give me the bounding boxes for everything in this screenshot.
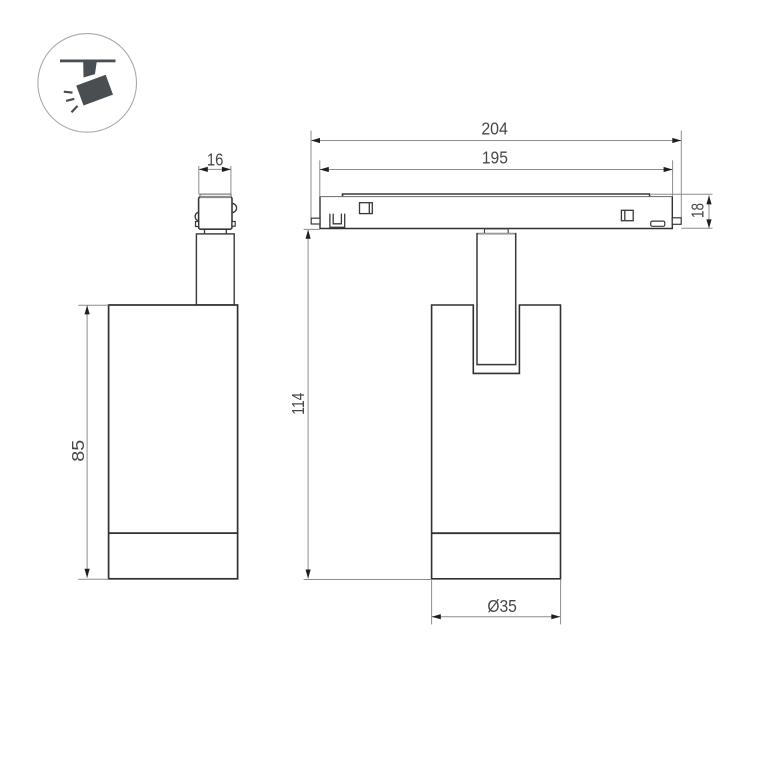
svg-text:195: 195 bbox=[482, 148, 508, 168]
svg-text:16: 16 bbox=[207, 149, 224, 169]
svg-text:114: 114 bbox=[288, 392, 308, 414]
svg-text:18: 18 bbox=[687, 203, 707, 218]
svg-text:Ø35: Ø35 bbox=[487, 596, 517, 616]
svg-text:85: 85 bbox=[68, 440, 88, 462]
svg-text:204: 204 bbox=[481, 118, 508, 138]
